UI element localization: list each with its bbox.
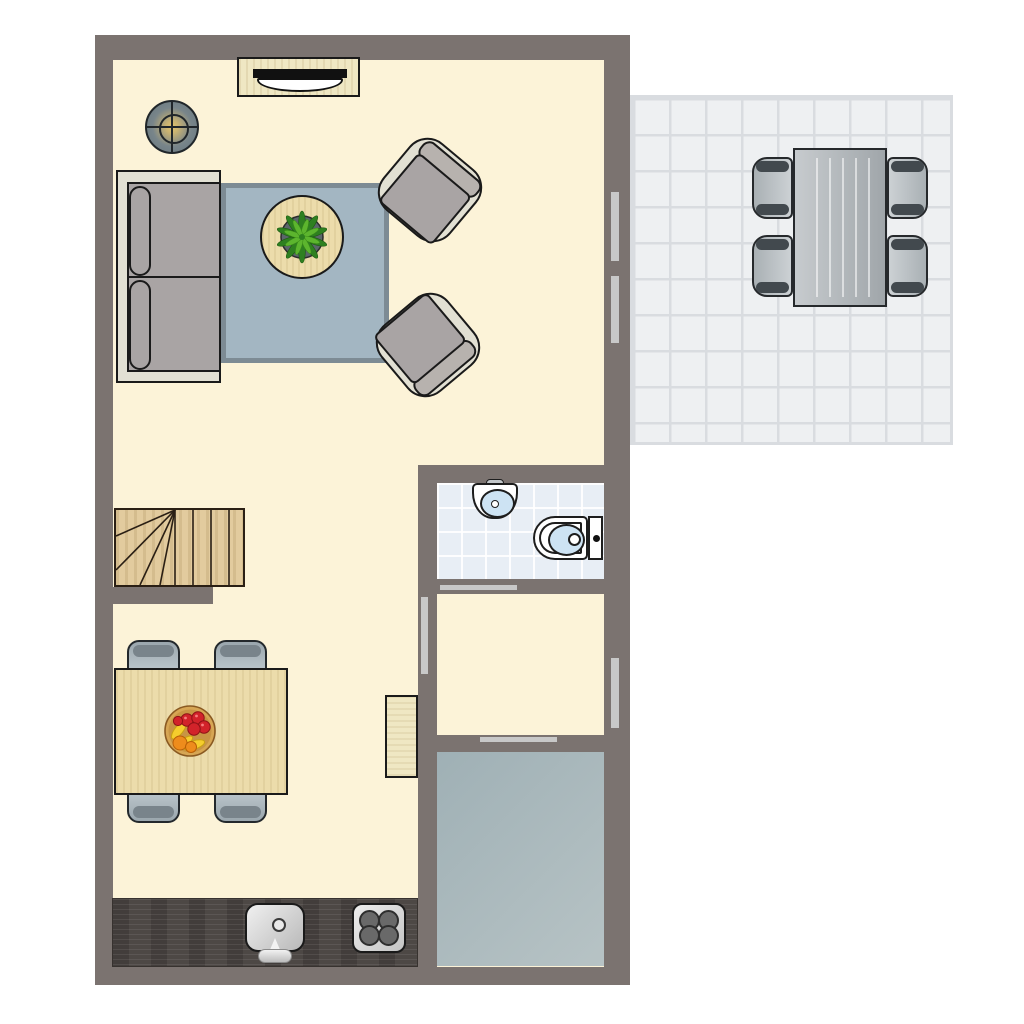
potted-plant[interactable] [274, 209, 330, 265]
chair-back [220, 645, 261, 657]
terrace-chair[interactable] [887, 157, 928, 219]
lamp-ring [159, 114, 189, 144]
chair-back [133, 806, 174, 818]
floor-lamp[interactable] [145, 100, 199, 154]
window-marker [611, 192, 619, 261]
chair-armrest [756, 161, 789, 172]
window-marker [611, 658, 619, 728]
chair-armrest [891, 161, 924, 172]
flush-button[interactable] [593, 535, 600, 542]
toilet-drain [568, 533, 581, 546]
sideboard[interactable] [385, 695, 418, 778]
burner [359, 925, 380, 946]
toilet[interactable] [533, 516, 588, 560]
chair-armrest [891, 204, 924, 215]
terrace-chair[interactable] [887, 235, 928, 297]
hallway-floor [437, 594, 604, 735]
terrace-chair[interactable] [752, 235, 793, 297]
floor-plan [0, 0, 1024, 1024]
window-marker [611, 276, 619, 343]
stove[interactable] [352, 903, 406, 953]
interior-wall [418, 465, 437, 985]
door-marker [480, 737, 557, 742]
door-marker [421, 597, 428, 674]
chair-back [220, 806, 261, 818]
chair-back [133, 645, 174, 657]
sofa-back-pillow [129, 186, 151, 276]
staircase[interactable] [114, 508, 245, 587]
terrace-chair[interactable] [752, 157, 793, 219]
chair-armrest [756, 282, 789, 293]
stair-wall-stub [113, 587, 213, 604]
faucet-base [258, 949, 292, 963]
burner [378, 925, 399, 946]
chair-armrest [891, 282, 924, 293]
interior-wall [418, 465, 630, 483]
chair-armrest [756, 204, 789, 215]
stair-treads [116, 510, 243, 585]
fruit-bowl[interactable] [163, 704, 217, 758]
chair-armrest [891, 239, 924, 250]
terrace-table[interactable] [793, 148, 887, 307]
door-marker [440, 585, 517, 590]
sink-drain [272, 918, 286, 932]
sofa-cushion-divider [127, 276, 221, 278]
basin-drain [491, 500, 499, 508]
television [253, 69, 347, 78]
sofa-back-pillow [129, 280, 151, 370]
toilet-cistern [588, 516, 603, 560]
chair-armrest [756, 239, 789, 250]
storage-room-floor [437, 752, 604, 966]
